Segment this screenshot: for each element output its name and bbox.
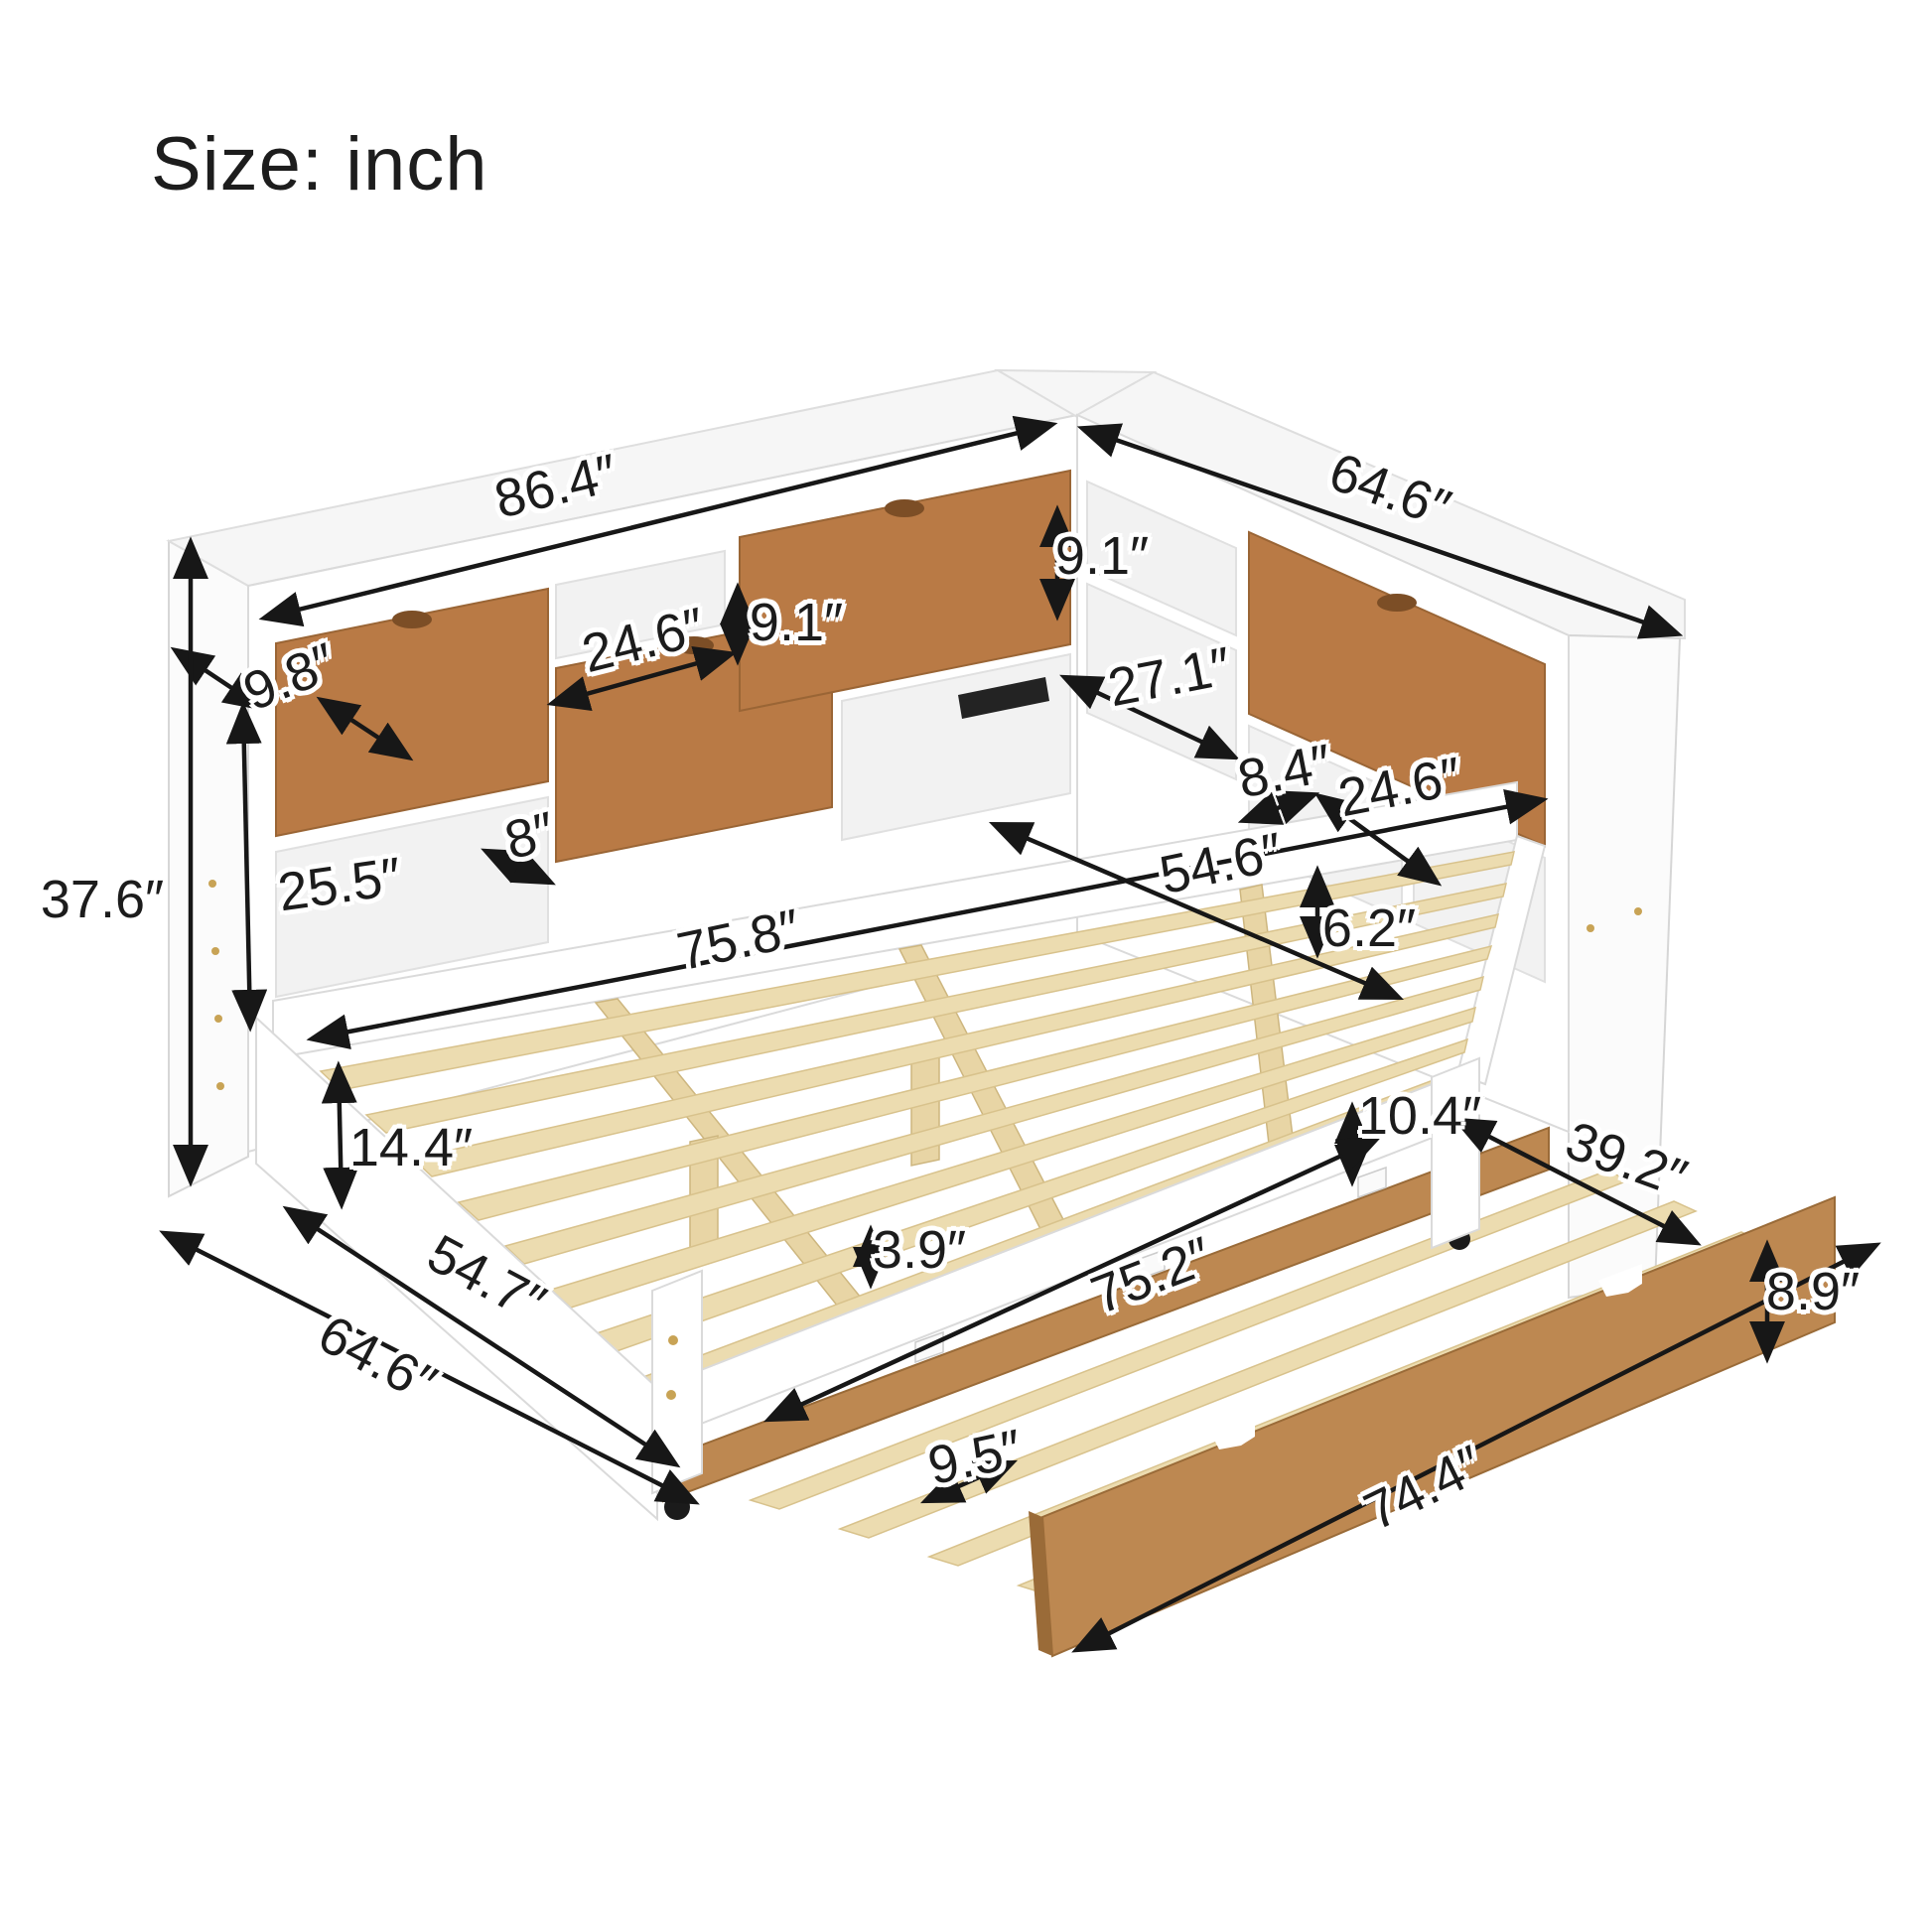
screw bbox=[1634, 907, 1642, 915]
drawer-handle-notch bbox=[1377, 594, 1417, 612]
screw bbox=[211, 947, 219, 955]
bed-front-left-leg bbox=[652, 1271, 702, 1493]
screw bbox=[216, 1082, 224, 1090]
dim-label-slat-rail-height: 3.9″ bbox=[873, 1223, 966, 1277]
dim-label-frame-height: 14.4″ bbox=[349, 1121, 473, 1174]
dim-label-total-height: 37.6″ bbox=[41, 873, 164, 926]
screw bbox=[214, 1015, 222, 1023]
dim-label-right-cubby-height: 9.1″ bbox=[1055, 529, 1149, 583]
dim-label-rail-height: 6.2″ bbox=[1322, 901, 1416, 955]
dim-arrow-frame-height bbox=[339, 1068, 342, 1202]
screw bbox=[1587, 924, 1594, 932]
left-bookcase-side-panel bbox=[169, 541, 248, 1196]
drawer-handle-notch bbox=[885, 499, 924, 517]
screw bbox=[666, 1390, 676, 1400]
dim-label-trundle-clearance: 10.4″ bbox=[1358, 1089, 1481, 1143]
furniture-diagram bbox=[0, 0, 1932, 1932]
dim-arrow-trundle-front-length bbox=[1078, 1246, 1874, 1649]
drawer-handle-notch bbox=[392, 611, 432, 628]
dim-label-trundle-panel-height: 8.9″ bbox=[1766, 1265, 1860, 1318]
screw bbox=[668, 1335, 678, 1345]
dim-label-left-cubby-height: 9.1″ bbox=[750, 596, 843, 649]
size-diagram: Size: inch bbox=[0, 0, 1932, 1932]
screw bbox=[208, 880, 216, 888]
